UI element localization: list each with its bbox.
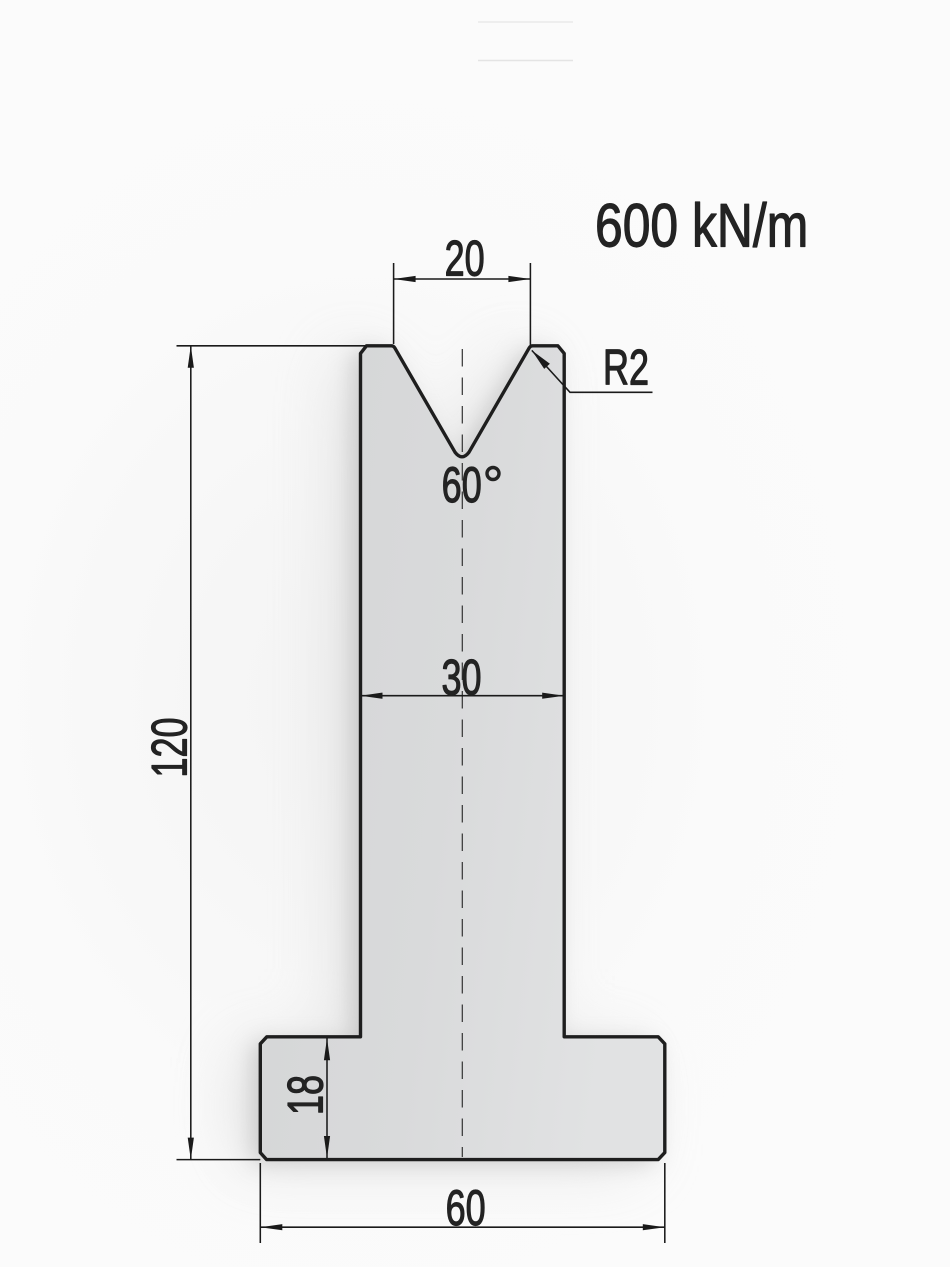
- svg-text:60: 60: [446, 1182, 486, 1237]
- svg-text:600 kN/m: 600 kN/m: [595, 192, 808, 260]
- svg-text:20: 20: [445, 232, 485, 287]
- svg-text:30: 30: [441, 651, 481, 706]
- svg-text:18: 18: [279, 1075, 334, 1115]
- svg-text:60: 60: [442, 458, 482, 513]
- svg-text:R2: R2: [603, 341, 649, 396]
- svg-text:120: 120: [143, 717, 198, 777]
